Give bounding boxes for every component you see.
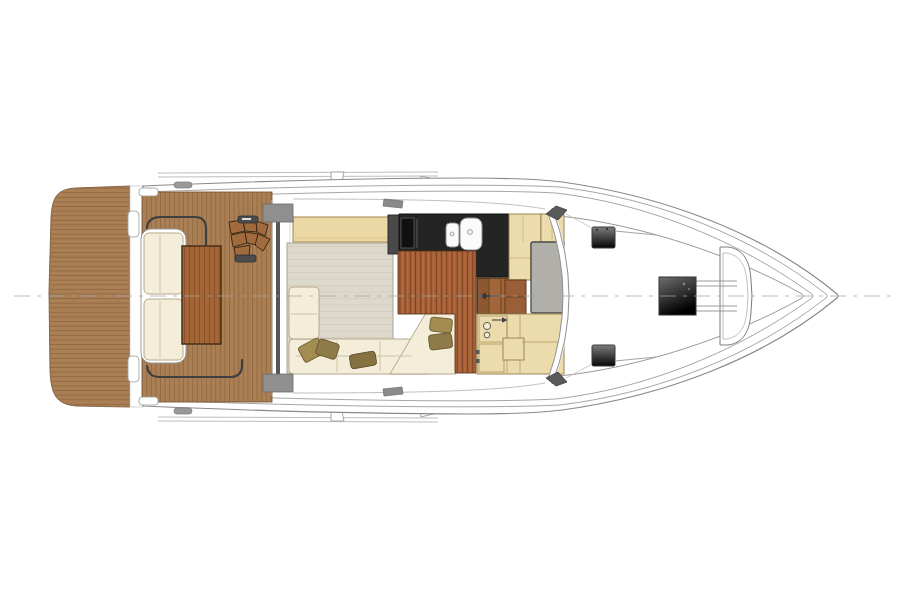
deck-hatch-port [592, 227, 615, 248]
gate-pad-bottom [383, 387, 403, 396]
side-deck-pad-top [263, 204, 293, 222]
handrail-highlight [242, 218, 251, 220]
helm-seat-box [503, 338, 524, 360]
hatch-hinge-dot [596, 229, 598, 231]
sliding-door-track [276, 214, 280, 375]
windlass-fitting-dot [688, 288, 690, 290]
bench-cushion-bottom [144, 299, 183, 360]
gate-pad-top [383, 199, 403, 208]
hatch-hinge-dot [606, 228, 608, 230]
stair-handrail-bottom [235, 255, 256, 262]
side-deck-pad-bottom [263, 374, 293, 392]
tv-cabinet [388, 215, 400, 254]
hatch-hinge-dot [606, 361, 608, 363]
pillow [428, 333, 453, 351]
deck-step-tab-top [139, 188, 158, 196]
deck-step-tab-bottom [139, 397, 158, 405]
bench-cushion-top [144, 233, 183, 294]
pillow [429, 317, 452, 333]
deck-hatch-starboard [592, 345, 615, 366]
deck-plan-drawing [0, 0, 900, 600]
burner-circle [484, 332, 490, 338]
transom-locker-top [128, 211, 139, 237]
sofa-side-section [289, 287, 319, 339]
cooktop-appliance [401, 218, 414, 248]
hatch-hinge-dot [596, 362, 598, 364]
cockpit-table [182, 246, 221, 344]
cabinet-handle [476, 350, 480, 354]
stern-cleat-bottom [174, 408, 192, 414]
windlass-fitting-dot [683, 283, 685, 285]
deck-plan-canvas [0, 0, 900, 600]
sink-drain [467, 229, 472, 234]
sink-drain [450, 232, 454, 236]
stern-cleat-top [174, 182, 192, 188]
transom-locker-bottom [128, 356, 139, 382]
burner-circle [483, 322, 490, 329]
cabinet-handle [476, 359, 480, 363]
